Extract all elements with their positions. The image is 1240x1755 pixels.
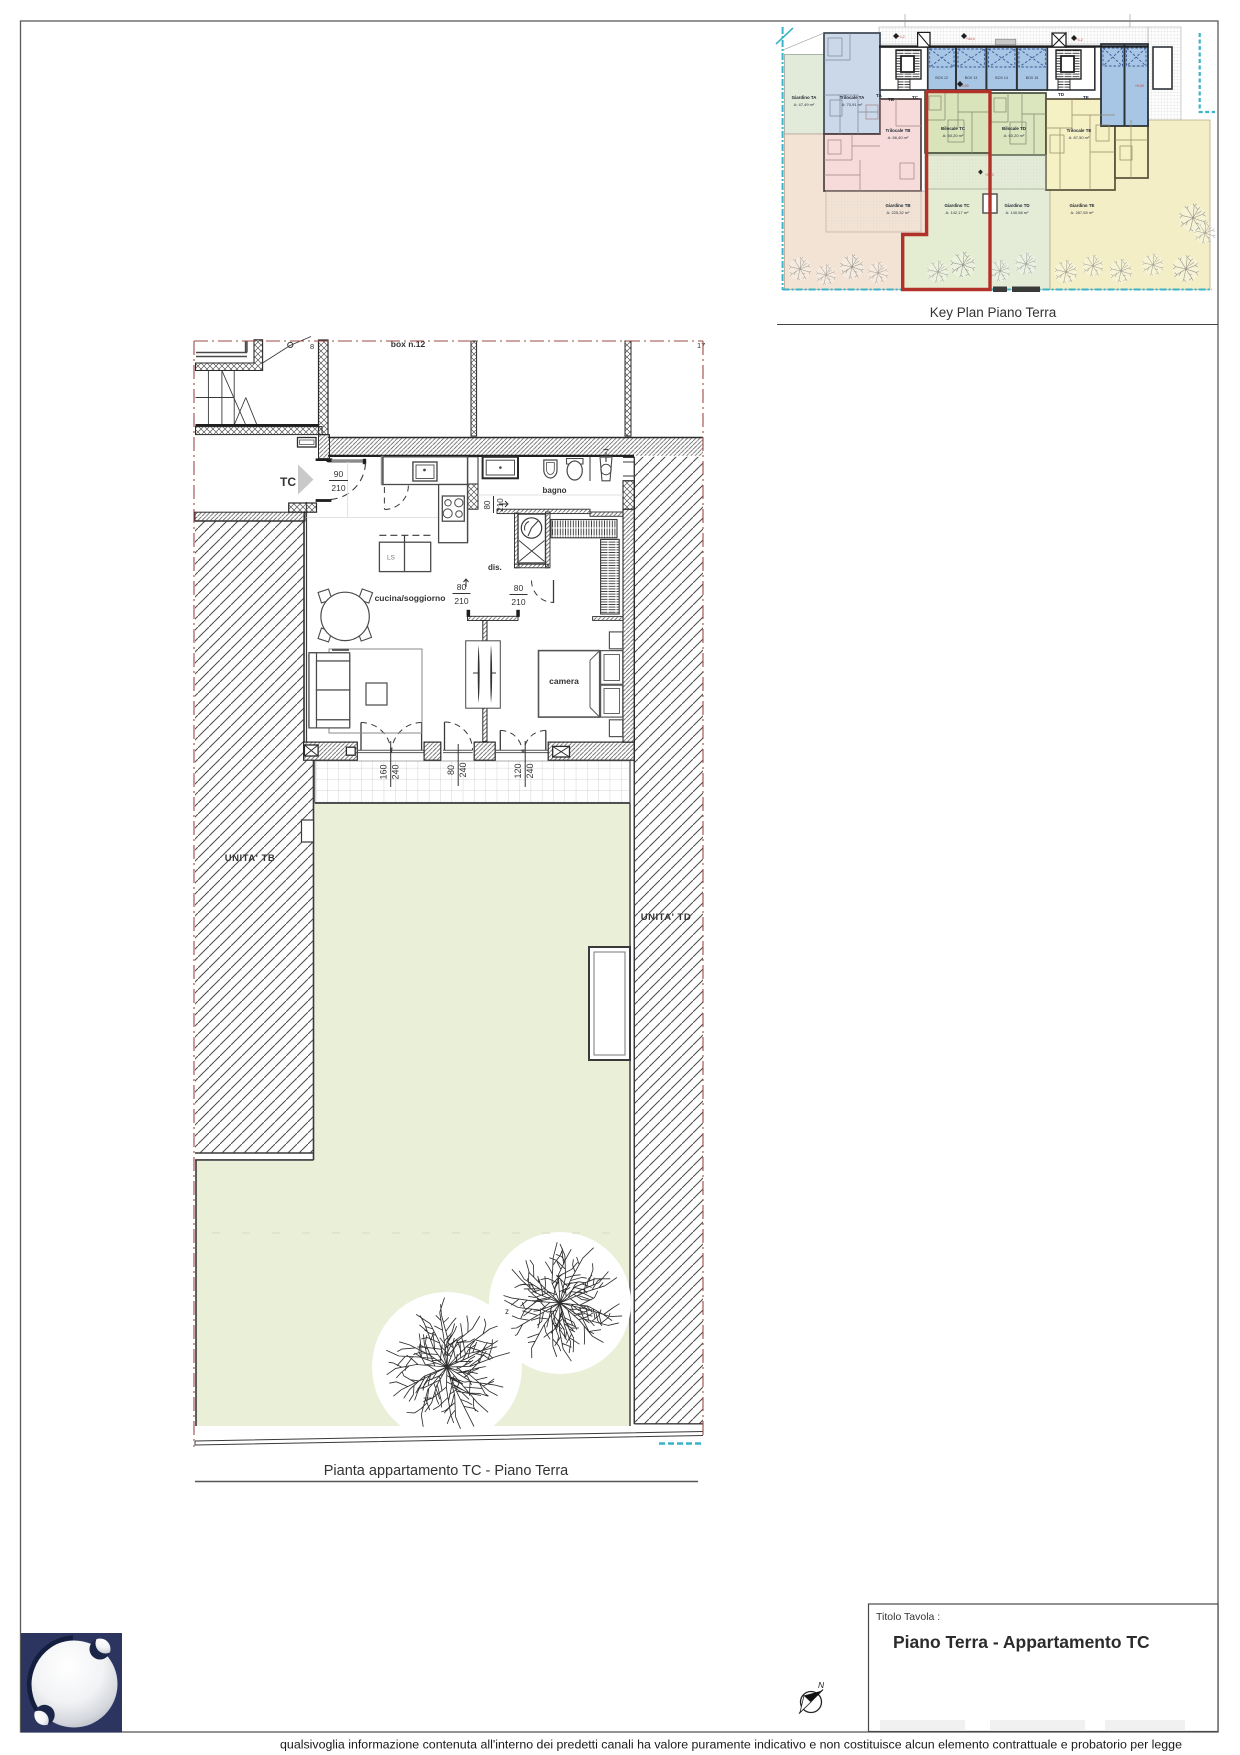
svg-text:TE: TE	[1083, 95, 1089, 100]
svg-text:80: 80	[483, 500, 492, 509]
svg-text:80: 80	[514, 583, 524, 593]
svg-text:A: 70,91 m²: A: 70,91 m²	[842, 102, 863, 107]
svg-text:240: 240	[458, 762, 468, 777]
svg-text:Giardino TB: Giardino TB	[885, 203, 910, 208]
svg-text:240: 240	[391, 764, 401, 779]
svg-text:Key Plan Piano Terra: Key Plan Piano Terra	[930, 305, 1057, 320]
svg-text:240: 240	[525, 763, 535, 778]
svg-text:Giardino TC: Giardino TC	[944, 203, 970, 208]
svg-text:210: 210	[496, 498, 505, 512]
svg-text:TD: TD	[1058, 92, 1065, 97]
svg-text:UNITA' TB: UNITA' TB	[225, 853, 275, 864]
svg-text:Giardino TD: Giardino TD	[1004, 203, 1029, 208]
svg-text:A: 140,58 m²: A: 140,58 m²	[1006, 210, 1030, 215]
svg-text:A: 225,32 m²: A: 225,32 m²	[887, 210, 911, 215]
svg-text:N: N	[818, 1680, 825, 1690]
svg-text:TB: TB	[888, 97, 895, 102]
svg-text:8: 8	[310, 342, 314, 351]
svg-text:cucina/soggiorno: cucina/soggiorno	[375, 593, 446, 603]
svg-text:camera: camera	[549, 676, 579, 686]
svg-text:Trilocale TE: Trilocale TE	[1067, 128, 1092, 133]
svg-text:17: 17	[697, 341, 705, 350]
svg-text:A: 60,20 m²: A: 60,20 m²	[943, 133, 964, 138]
svg-text:TA: TA	[876, 93, 882, 98]
svg-text:bagno: bagno	[543, 486, 567, 495]
svg-text:dis.: dis.	[488, 563, 502, 572]
svg-text:+0,00: +0,00	[1135, 84, 1144, 88]
svg-text:qualsivoglia informazione cont: qualsivoglia informazione contenuta all'…	[280, 1738, 1182, 1752]
svg-text:Bilocale TC: Bilocale TC	[941, 126, 966, 131]
svg-text:210: 210	[331, 483, 345, 493]
svg-text:Pianta appartamento TC - Piano: Pianta appartamento TC - Piano Terra	[324, 1463, 569, 1479]
svg-text:A: 66,40 m²: A: 66,40 m²	[888, 135, 909, 140]
svg-text:+1,2: +1,2	[1076, 38, 1083, 42]
svg-text:BOX 12: BOX 12	[935, 76, 948, 80]
svg-text:UNITA' TD: UNITA' TD	[641, 912, 691, 923]
svg-text:+1,2: +1,2	[898, 35, 905, 39]
svg-text:80: 80	[446, 765, 456, 775]
svg-text:LS: LS	[387, 555, 396, 562]
svg-text:A: 287,55 m²: A: 287,55 m²	[1071, 210, 1095, 215]
svg-text:Trilocale TB: Trilocale TB	[886, 128, 911, 133]
svg-text:A: 60,20 m²: A: 60,20 m²	[1004, 133, 1025, 138]
svg-text:90: 90	[334, 469, 344, 479]
svg-text:BOX 13: BOX 13	[965, 76, 978, 80]
svg-text:+44,4: +44,4	[966, 37, 975, 41]
svg-text:210: 210	[454, 596, 468, 606]
svg-text:A: 142,17 m²: A: 142,17 m²	[946, 210, 970, 215]
svg-text:Giardino TE: Giardino TE	[1070, 203, 1095, 208]
svg-text:TC: TC	[912, 95, 919, 100]
svg-text:BOX 15: BOX 15	[1026, 76, 1039, 80]
svg-text:A: 87,50 m²: A: 87,50 m²	[1069, 135, 1090, 140]
svg-text:210: 210	[511, 597, 525, 607]
svg-text:z: z	[505, 1307, 509, 1316]
svg-text:Titolo Tavola :: Titolo Tavola :	[876, 1611, 940, 1623]
svg-text:BOX 14: BOX 14	[995, 76, 1008, 80]
svg-text:Bilocale TD: Bilocale TD	[1002, 126, 1026, 131]
svg-text:120: 120	[513, 763, 523, 778]
svg-text:Giardino TA: Giardino TA	[792, 95, 818, 100]
svg-text:A: 47,49 m²: A: 47,49 m²	[794, 102, 815, 107]
svg-text:TC: TC	[280, 475, 296, 489]
svg-text:Trilocale TA: Trilocale TA	[840, 95, 865, 100]
svg-text:Piano Terra - Appartamento TC: Piano Terra - Appartamento TC	[893, 1632, 1150, 1652]
svg-text:80: 80	[457, 582, 467, 592]
svg-text:160: 160	[379, 764, 389, 779]
